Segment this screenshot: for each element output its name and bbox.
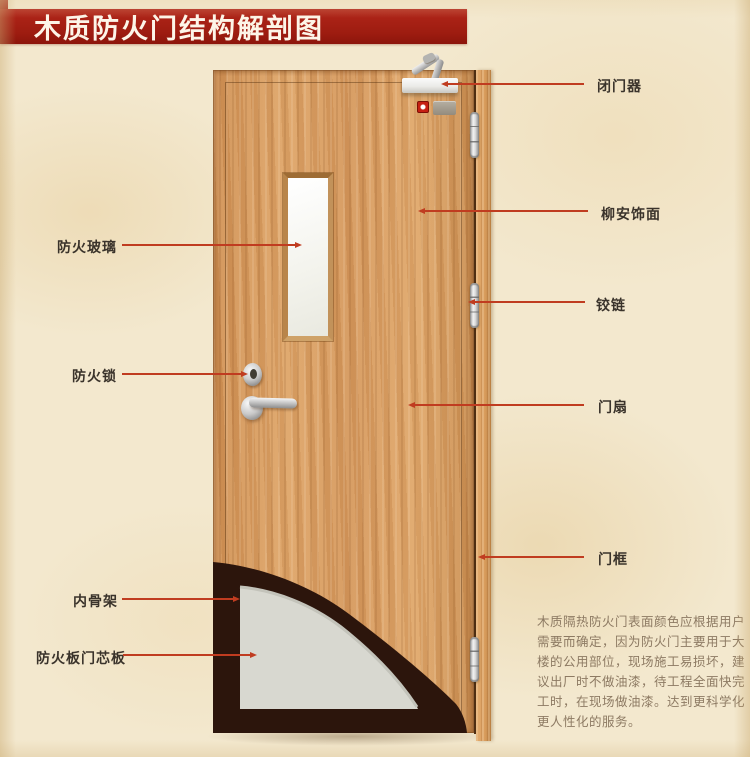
description-line: 工时，在现场做油漆。达到更科学化 xyxy=(537,692,749,712)
door-closer-body xyxy=(402,78,458,93)
page-title: 木质防火门结构解剖图 xyxy=(0,7,324,46)
leader-inner-skeleton xyxy=(122,598,234,600)
description-line: 楼的公用部位，现场施工易损坏，建 xyxy=(537,652,749,672)
label-hinge: 铰链 xyxy=(596,295,626,315)
fire-glass-window-frame xyxy=(283,173,333,341)
label-door-frame: 门框 xyxy=(598,549,628,569)
label-door-leaf: 门扇 xyxy=(598,397,628,417)
leader-door-closer xyxy=(447,83,584,85)
label-inner-skeleton: 内骨架 xyxy=(73,591,118,611)
leader-door-frame xyxy=(484,556,584,558)
strike-plate xyxy=(433,101,456,115)
label-fire-glass: 防火玻璃 xyxy=(57,237,117,257)
hinge-bottom xyxy=(470,637,479,682)
label-fire-lock: 防火锁 xyxy=(72,366,117,386)
keyhole xyxy=(250,369,257,379)
leader-fire-board-core xyxy=(123,654,251,656)
label-door-closer: 闭门器 xyxy=(597,76,642,96)
infographic-page: 木质防火门结构解剖图 防火玻璃 防火锁 内骨架 防火板门芯板 闭门器 柳安饰面 xyxy=(0,0,750,757)
leader-lauan-veneer xyxy=(424,210,588,212)
leader-hinge xyxy=(474,301,585,303)
leader-fire-lock xyxy=(122,373,242,375)
leader-fire-glass xyxy=(122,244,296,246)
description-line: 木质隔热防火门表面颜色应根据用户 xyxy=(537,612,749,632)
leader-door-leaf xyxy=(414,404,584,406)
hinge-top xyxy=(470,112,479,158)
hinge-middle xyxy=(470,283,479,328)
fire-glass-pane xyxy=(288,178,328,336)
description-paragraph: 木质隔热防火门表面颜色应根据用户 需要而确定，因为防火门主要用于大 楼的公用部位… xyxy=(537,612,749,732)
label-lauan-veneer: 柳安饰面 xyxy=(601,204,661,224)
fire-rating-indicator xyxy=(417,101,429,113)
description-line: 议出厂时不做油漆，待工程全面快完 xyxy=(537,672,749,692)
title-banner: 木质防火门结构解剖图 xyxy=(0,9,467,44)
description-line: 更人性化的服务。 xyxy=(537,712,749,732)
door-handle-lever xyxy=(249,397,297,408)
description-line: 需要而确定，因为防火门主要用于大 xyxy=(537,632,749,652)
label-fire-board-core: 防火板门芯板 xyxy=(36,648,126,668)
